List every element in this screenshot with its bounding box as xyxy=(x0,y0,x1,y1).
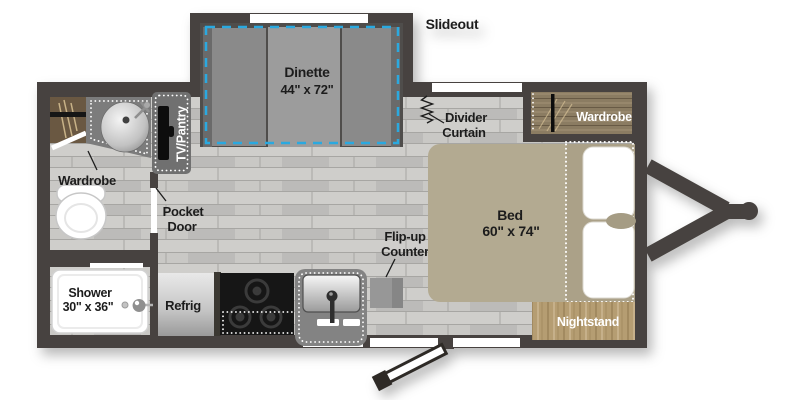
dinette-label: Dinette xyxy=(284,64,330,80)
nightstand-label: Nightstand xyxy=(557,315,619,329)
floorplan-scene: Dinette 44" x 72" Slideout Wardrobe xyxy=(0,0,800,400)
bed-size: 60" x 74" xyxy=(482,223,539,239)
dinette-size: 44" x 72" xyxy=(280,82,333,97)
shower-room: Shower 30" x 36" xyxy=(52,270,153,333)
pocket-door-wall-upper xyxy=(150,172,158,188)
sink-handle-right xyxy=(343,319,360,326)
bed-label: Bed xyxy=(497,207,523,223)
wardrobe-divider xyxy=(551,94,555,132)
entry-door-panel xyxy=(383,345,446,384)
cabinet-shelf xyxy=(50,112,86,117)
shower-size: 30" x 36" xyxy=(63,300,114,314)
refrig-divider xyxy=(214,272,221,336)
tv-icon xyxy=(158,106,169,160)
refrig-label: Refrig xyxy=(165,298,201,313)
hitch-coupler xyxy=(740,202,758,220)
divider-label-1: Divider xyxy=(445,110,487,125)
entry-door xyxy=(372,342,448,391)
bottom-window-bedroom xyxy=(453,338,520,347)
cooktop xyxy=(220,273,294,335)
pillow-top xyxy=(583,147,634,219)
wardrobe-left-label: Wardrobe xyxy=(58,173,116,188)
pocket-door-label-1: Pocket xyxy=(163,204,205,219)
divider-label-2: Curtain xyxy=(442,125,486,140)
top-window xyxy=(432,83,522,92)
sink-handle-left xyxy=(317,319,339,326)
left-wall xyxy=(37,82,50,348)
dinette-bench-right xyxy=(342,28,391,146)
wardrobe-right-label: Wardrobe xyxy=(576,110,632,124)
trailer-body: Dinette 44" x 72" Slideout Wardrobe xyxy=(37,13,758,391)
dinette-bench-left xyxy=(212,28,266,146)
flip-up-label-2: Counter xyxy=(381,244,429,259)
pocket-door-label-2: Door xyxy=(167,219,196,234)
slideout-label: Slideout xyxy=(426,16,479,32)
flip-up-counter-edge xyxy=(392,278,403,308)
shower-label: Shower xyxy=(68,286,112,300)
flip-up-label-1: Flip-up xyxy=(384,229,426,244)
pocket-door-panel xyxy=(151,188,157,233)
slideout-window xyxy=(250,14,368,23)
tv-mount xyxy=(168,126,174,137)
shower-drain xyxy=(122,302,128,308)
pillow-gap xyxy=(606,213,636,229)
tv-pantry-label: TV/Pantry xyxy=(175,106,189,162)
slideout-room: Dinette 44" x 72" xyxy=(200,23,403,147)
hitch-tongue xyxy=(648,166,758,255)
shower-wall-niche xyxy=(90,263,143,268)
floorplan-canvas: Dinette 44" x 72" Slideout Wardrobe xyxy=(0,0,800,400)
entry-door-opening xyxy=(370,338,438,347)
dinette-seatback-left xyxy=(203,27,212,147)
sink-drain xyxy=(123,117,130,124)
pillow-bottom xyxy=(583,222,634,298)
